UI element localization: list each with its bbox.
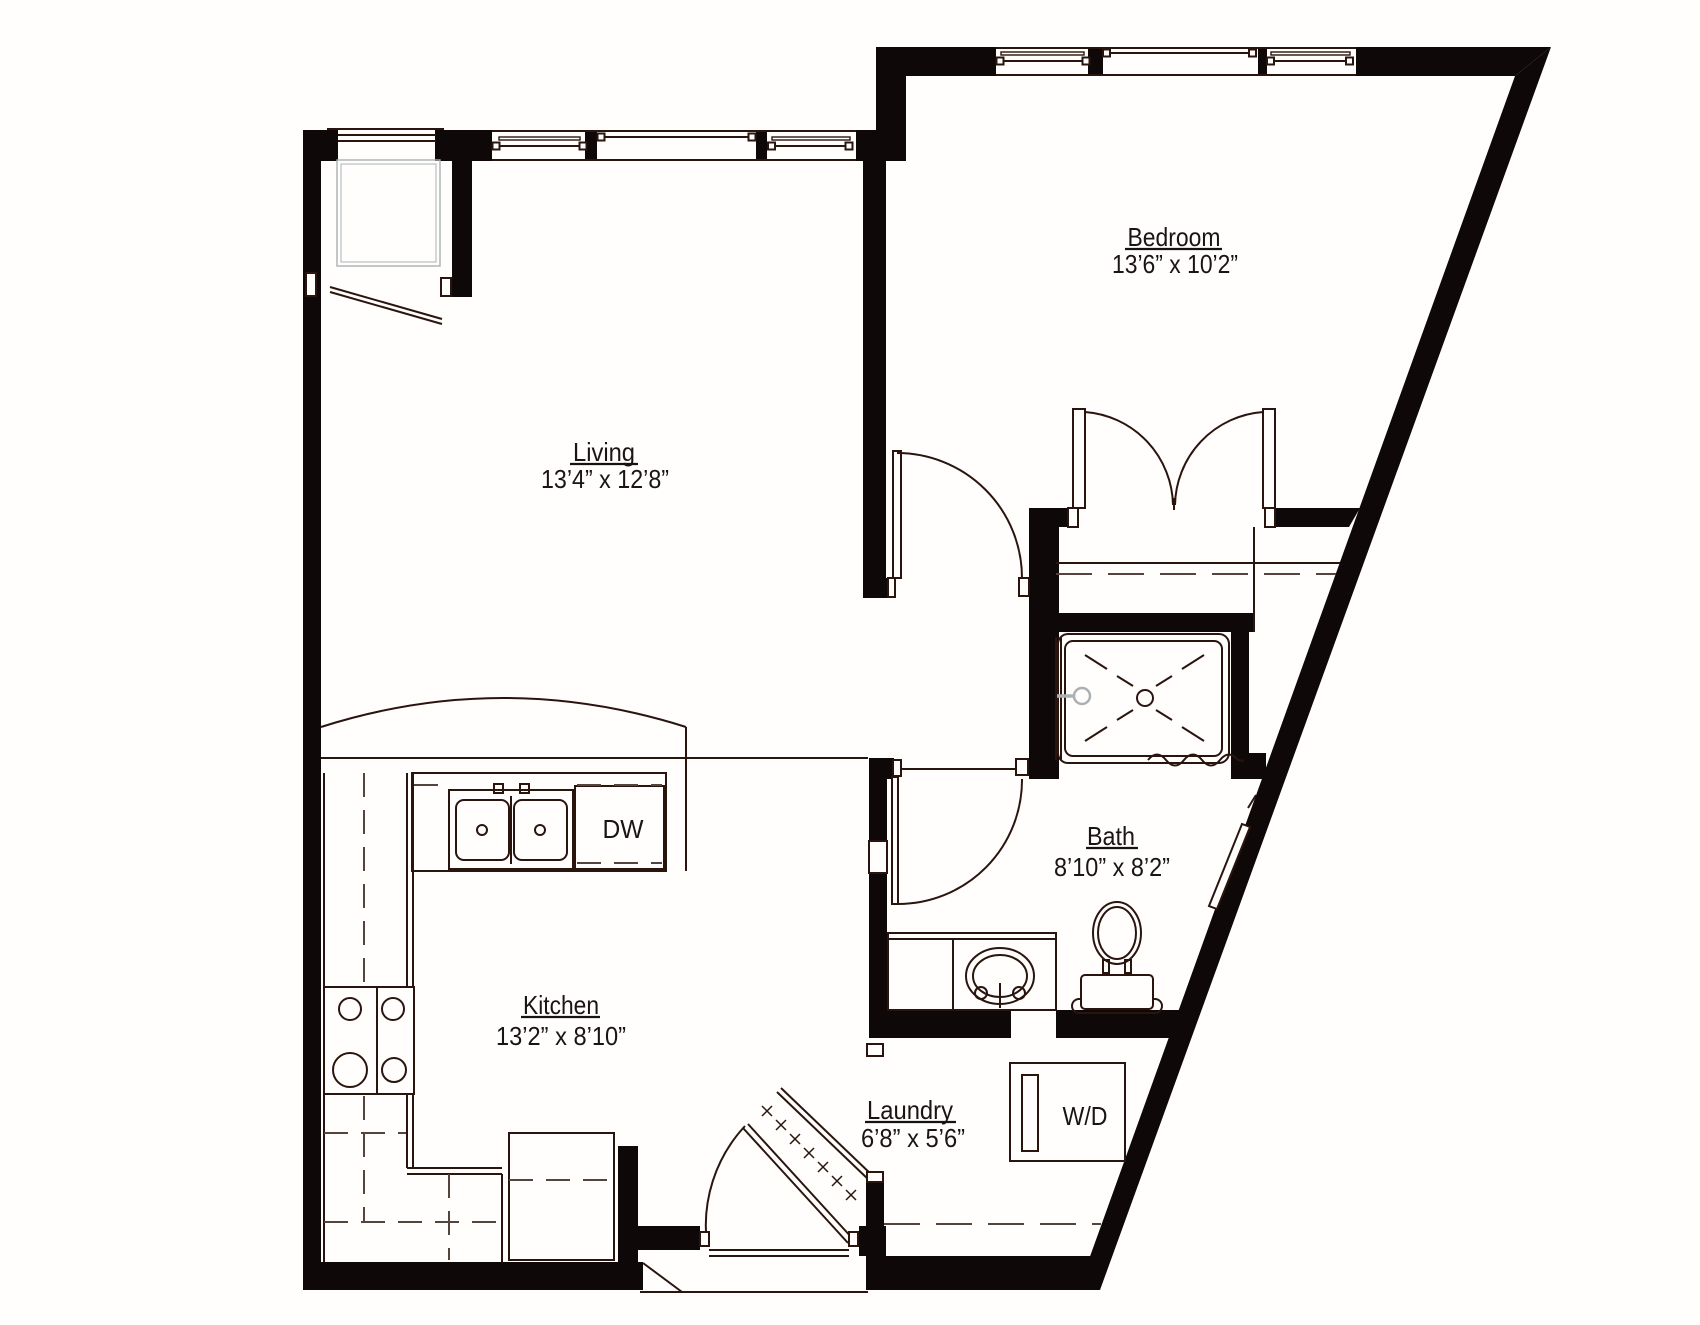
svg-text:13’6” x 10’2”: 13’6” x 10’2”	[1112, 249, 1238, 279]
svg-text:13’2” x 8’10”: 13’2” x 8’10”	[496, 1021, 626, 1051]
svg-text:W/D: W/D	[1063, 1101, 1108, 1131]
svg-text:DW: DW	[603, 814, 644, 844]
svg-text:Laundry: Laundry	[867, 1095, 953, 1125]
svg-text:Bath: Bath	[1087, 821, 1135, 851]
svg-text:Bedroom: Bedroom	[1128, 222, 1221, 252]
svg-text:Kitchen: Kitchen	[523, 990, 599, 1020]
svg-text:6’8” x 5’6”: 6’8” x 5’6”	[861, 1123, 965, 1153]
svg-text:Living: Living	[573, 437, 635, 467]
svg-text:8’10” x 8’2”: 8’10” x 8’2”	[1054, 852, 1170, 882]
svg-text:13’4” x 12’8”: 13’4” x 12’8”	[541, 464, 669, 494]
